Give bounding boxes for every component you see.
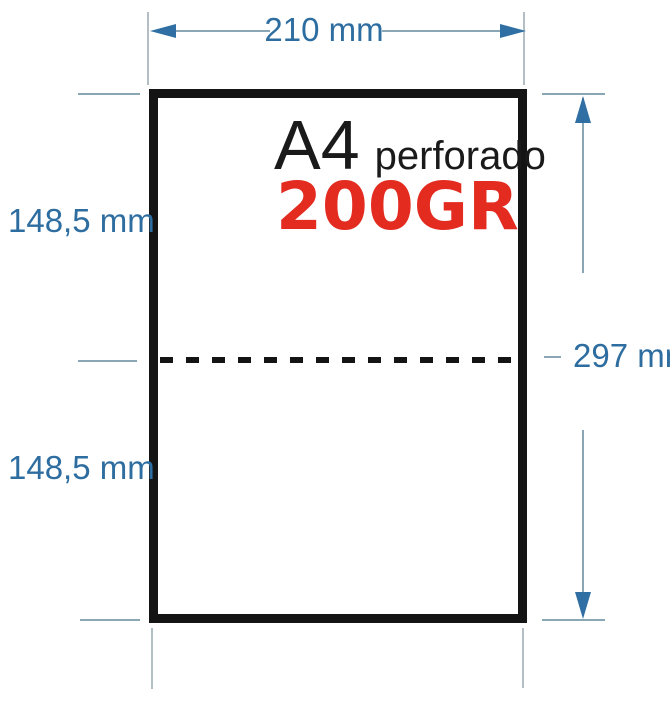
half-tick-top <box>78 93 140 95</box>
half-tick-bottom <box>80 619 140 621</box>
width-arrowhead-right-icon <box>500 24 526 38</box>
upper-half-dimension-label: 148,5 mm <box>8 204 155 237</box>
width-extension-line-left <box>147 12 149 85</box>
height-dimension-label: 297 mm <box>573 339 670 372</box>
corner-extension-line-left <box>151 628 153 689</box>
width-arrowhead-left-icon <box>150 24 176 38</box>
paper-weight-label: 200GR <box>276 174 519 240</box>
lower-half-dimension-label: 148,5 mm <box>8 451 155 484</box>
height-mid-tick <box>544 356 561 358</box>
width-dim-line-left <box>172 30 270 32</box>
perforation-line <box>160 357 518 363</box>
half-tick-middle <box>78 360 137 362</box>
height-extension-tick-top <box>542 93 605 95</box>
height-dim-line-lower <box>582 430 584 594</box>
figure-canvas: A4 perforado 200GR 210 mm 297 mm 148,5 m… <box>0 0 670 707</box>
width-extension-line-right <box>523 12 525 85</box>
width-dim-line-right <box>382 30 502 32</box>
width-dimension-label: 210 mm <box>262 13 386 46</box>
height-arrowhead-down-icon <box>575 592 591 619</box>
height-extension-tick-bottom <box>542 619 605 621</box>
corner-extension-line-right <box>522 628 524 688</box>
height-arrowhead-up-icon <box>575 96 591 123</box>
height-dim-line-upper <box>582 98 584 273</box>
